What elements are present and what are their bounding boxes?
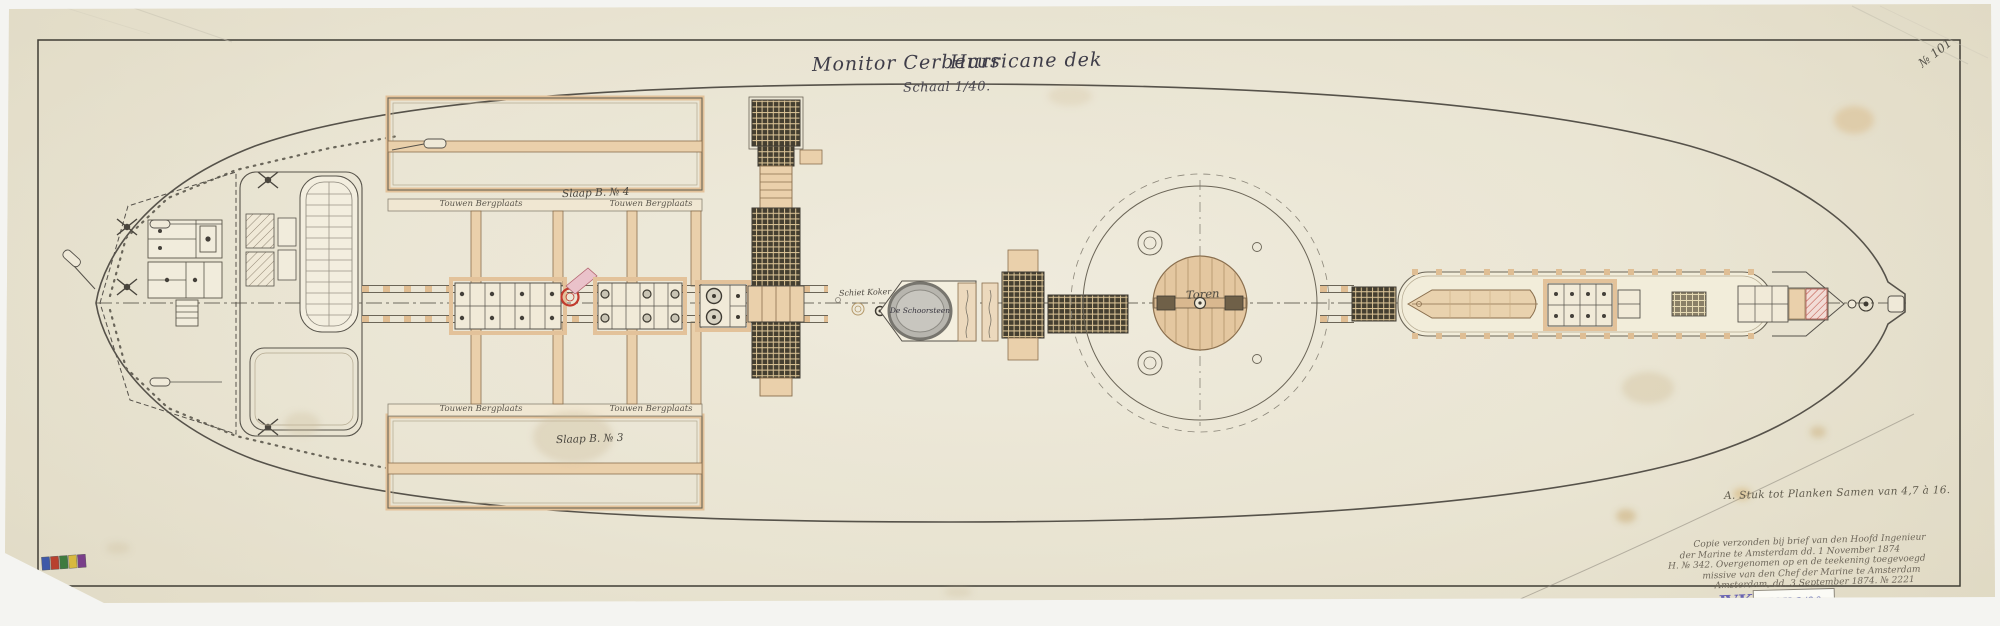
berth-block-a	[451, 279, 565, 333]
walkway-aft	[1320, 286, 1396, 323]
midship-gratings	[1002, 250, 1128, 360]
archive-code-box: Ⅳ K 2/90	[1753, 588, 1836, 616]
aft-deckhouse	[1398, 272, 1788, 336]
paper-stains	[106, 86, 1874, 597]
deckhouse-top	[388, 98, 702, 190]
winch-block	[697, 282, 749, 330]
vent-grating-tower	[748, 97, 822, 396]
pink-flag-marker	[566, 268, 597, 294]
deck-plan-drawing	[0, 0, 2000, 626]
bow-platform	[61, 172, 278, 435]
drawing-sheet: Monitor Cerberus Hurricane dek Schaal 1/…	[0, 0, 2000, 626]
scan-background: Monitor Cerberus Hurricane dek Schaal 1/…	[0, 0, 2000, 626]
shot-chute-symbols	[836, 298, 885, 316]
stern-structure	[1772, 272, 1904, 336]
funnel-housing	[880, 281, 998, 341]
corner-color-patch	[41, 554, 86, 570]
archive-code: Ⅳ K 2/90	[1766, 594, 1822, 609]
scanned-ship-plan: { "page": { "corner_number": "№ 101" }, …	[0, 0, 2000, 626]
forward-superstructure	[240, 172, 362, 436]
berth-block-b	[595, 279, 685, 333]
